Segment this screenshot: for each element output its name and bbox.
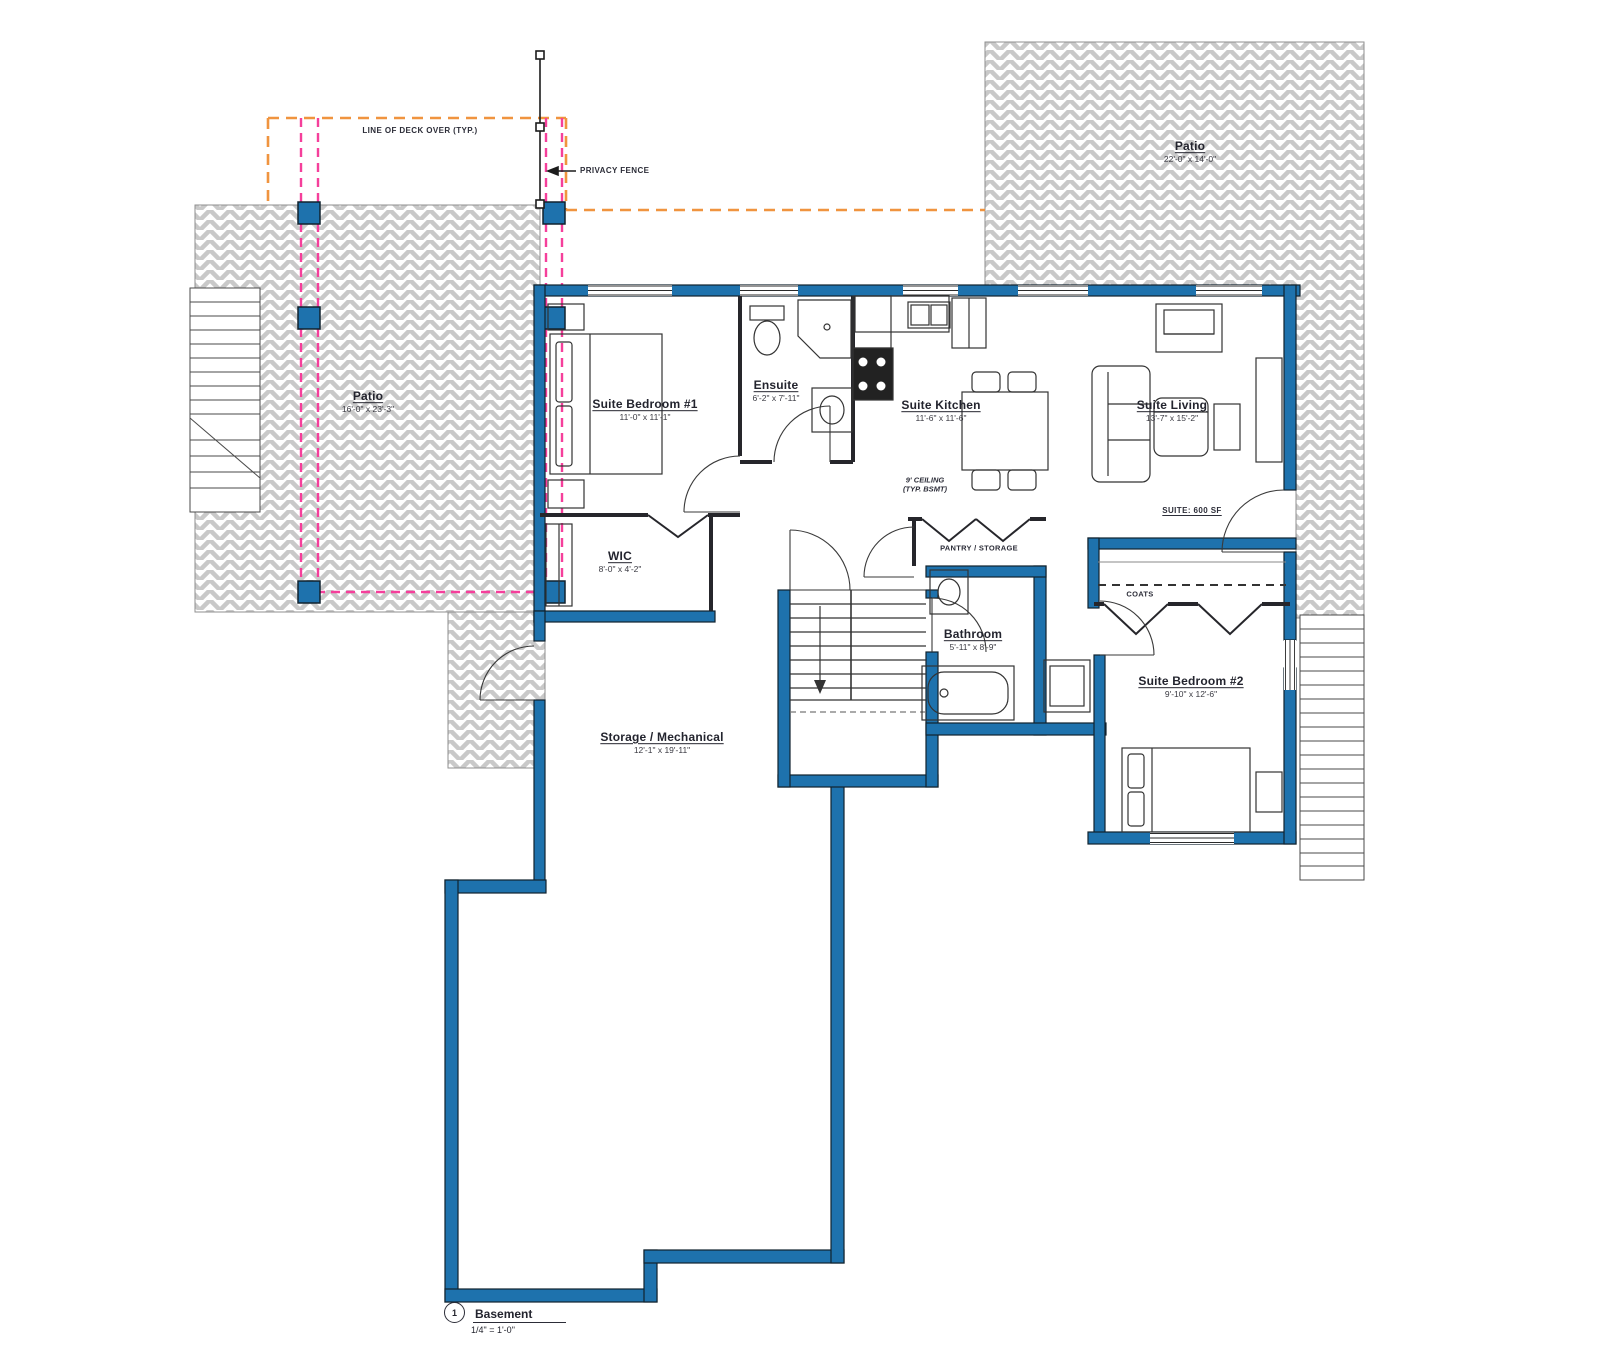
- room-label-suite-living: Suite Living 13'-7" x 15'-2": [1137, 398, 1207, 424]
- drawing-title-block: 1 Basement 1/4" = 1'-0": [444, 1302, 566, 1335]
- room-label-ensuite: Ensuite 6'-2" x 7'-11": [753, 378, 800, 404]
- room-name: Bathroom: [944, 627, 1002, 642]
- room-dims: 13'-7" x 15'-2": [1137, 413, 1207, 424]
- room-dims: 16'-0" x 23'-3": [342, 404, 394, 415]
- right-patio-hatch: [985, 42, 1364, 618]
- room-label-suite-bedroom-1: Suite Bedroom #1 11'-0" x 11'-1": [592, 397, 697, 423]
- room-dims: 8'-0" x 4'-2": [599, 564, 642, 575]
- room-name: Ensuite: [753, 378, 800, 393]
- suite-area-note: SUITE: 600 SF: [1162, 506, 1221, 516]
- pantry-note: PANTRY / STORAGE: [940, 543, 1018, 552]
- room-label-wic: WIC 8'-0" x 4'-2": [599, 549, 642, 575]
- deck-over-note: LINE OF DECK OVER (TYP.): [362, 126, 477, 136]
- patio-stairs: [190, 288, 260, 512]
- room-label-storage-mechanical: Storage / Mechanical 12'-1" x 19'-11": [600, 730, 723, 756]
- room-label-suite-kitchen: Suite Kitchen 11'-6" x 11'-6": [901, 398, 980, 424]
- privacy-fence-line: [536, 51, 576, 208]
- room-dims: 11'-0" x 11'-1": [592, 412, 697, 423]
- interior-walls: [540, 296, 1290, 611]
- room-label-patio-left: Patio 16'-0" x 23'-3": [342, 389, 394, 415]
- room-label-bathroom: Bathroom 5'-11" x 8'-9": [944, 627, 1002, 653]
- floor-plan-drawing: [0, 0, 1600, 1372]
- room-name: Suite Kitchen: [901, 398, 980, 413]
- room-name: Patio: [1164, 139, 1216, 154]
- walls: [445, 285, 1300, 1302]
- room-name: WIC: [599, 549, 642, 564]
- privacy-fence-note: PRIVACY FENCE: [580, 166, 649, 176]
- room-name: Suite Living: [1137, 398, 1207, 413]
- windows: [588, 285, 1296, 844]
- room-dims: 11'-6" x 11'-6": [901, 413, 980, 424]
- room-label-suite-bedroom-2: Suite Bedroom #2 9'-10" x 12'-6": [1138, 674, 1243, 700]
- room-name: Storage / Mechanical: [600, 730, 723, 745]
- main-stairs: [790, 590, 926, 712]
- room-dims: 6'-2" x 7'-11": [753, 393, 800, 404]
- floor-plan-sheet: LINE OF DECK OVER (TYP.) PRIVACY FENCE P…: [0, 0, 1600, 1372]
- room-name: Suite Bedroom #1: [592, 397, 697, 412]
- drawing-number-bubble: 1: [444, 1302, 465, 1323]
- coats-note: COATS: [1126, 589, 1153, 598]
- room-name: Patio: [342, 389, 394, 404]
- room-dims: 12'-1" x 19'-11": [600, 745, 723, 756]
- room-dims: 5'-11" x 8'-9": [944, 642, 1002, 653]
- room-name: Suite Bedroom #2: [1138, 674, 1243, 689]
- drawing-title: Basement: [473, 1307, 566, 1323]
- drawing-scale: 1/4" = 1'-0": [471, 1325, 566, 1335]
- ceiling-note: 9' CEILING (TYP. BSMT): [903, 476, 947, 495]
- room-label-patio-right: Patio 22'-0" x 14'-0": [1164, 139, 1216, 165]
- room-dims: 22'-0" x 14'-0": [1164, 154, 1216, 165]
- room-dims: 9'-10" x 12'-6": [1138, 689, 1243, 700]
- exterior-stairs: [1300, 615, 1364, 880]
